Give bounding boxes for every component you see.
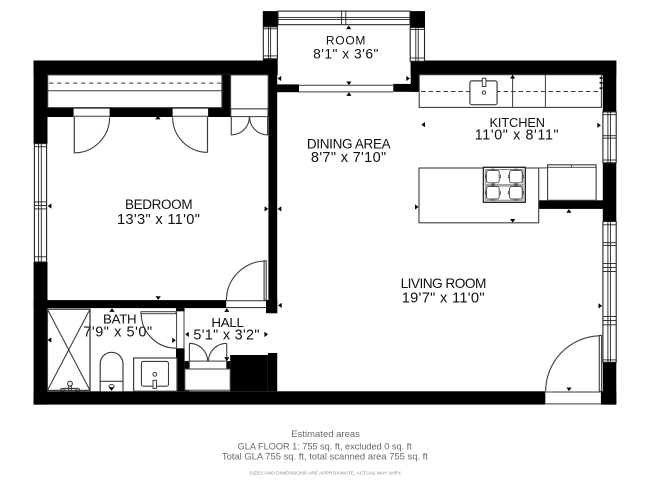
svg-text:ROOM: ROOM (326, 34, 366, 48)
svg-text:8'1" x 3'6": 8'1" x 3'6" (313, 47, 379, 62)
svg-text:8'7" x 7'10": 8'7" x 7'10" (311, 150, 387, 166)
svg-text:5'1" x 3'2": 5'1" x 3'2" (193, 328, 259, 344)
svg-text:LIVING ROOM: LIVING ROOM (401, 276, 486, 291)
svg-text:13'3" x 11'0": 13'3" x 11'0" (117, 212, 200, 228)
svg-text:SIZES AND DIMENSIONS ARE APPRO: SIZES AND DIMENSIONS ARE APPROXIMATE, AC… (249, 471, 402, 477)
svg-text:BEDROOM: BEDROOM (125, 197, 192, 212)
svg-text:11'0" x 8'11": 11'0" x 8'11" (475, 128, 559, 144)
svg-text:7'9" x 5'0": 7'9" x 5'0" (83, 325, 152, 341)
svg-text:19'7" x 11'0": 19'7" x 11'0" (402, 290, 485, 306)
svg-text:Estimated areas: Estimated areas (291, 429, 360, 440)
svg-text:Total GLA 755 sq. ft, total sc: Total GLA 755 sq. ft, total scanned area… (222, 450, 428, 461)
